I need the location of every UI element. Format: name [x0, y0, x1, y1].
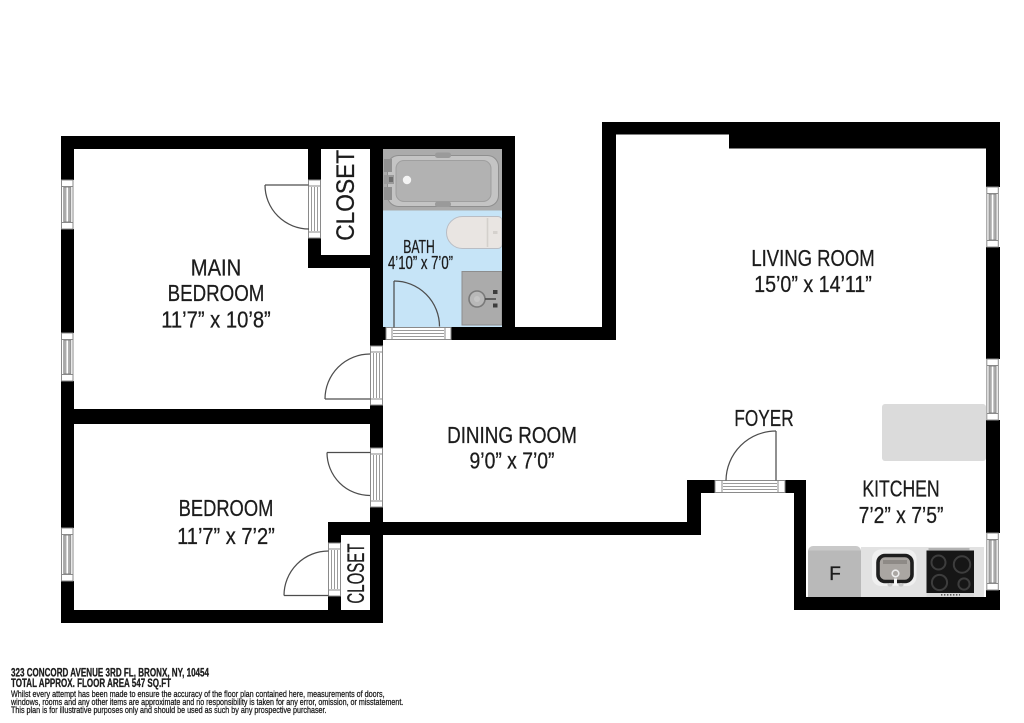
svg-text:7’2” x 7’5”: 7’2” x 7’5” — [859, 502, 944, 528]
svg-text:BEDROOM: BEDROOM — [179, 495, 274, 521]
svg-text:11’7” x 7’2”: 11’7” x 7’2” — [177, 523, 275, 549]
svg-text:FOYER: FOYER — [734, 405, 793, 431]
svg-text:MAIN: MAIN — [191, 254, 242, 280]
svg-text:15’0” x 14’11”: 15’0” x 14’11” — [754, 271, 872, 297]
svg-text:11’7” x 10’8”: 11’7” x 10’8” — [161, 307, 271, 333]
svg-text:BEDROOM: BEDROOM — [168, 280, 265, 306]
svg-text:CLOSET: CLOSET — [343, 543, 370, 603]
svg-text:4’10” x 7’0”: 4’10” x 7’0” — [388, 253, 453, 273]
svg-text:This plan is for illustrative: This plan is for illustrative purposes o… — [11, 705, 327, 715]
svg-text:9’0” x 7’0”: 9’0” x 7’0” — [470, 448, 555, 474]
svg-text:LIVING ROOM: LIVING ROOM — [751, 245, 874, 271]
svg-text:KITCHEN: KITCHEN — [862, 476, 939, 502]
svg-text:F: F — [829, 564, 841, 585]
svg-text:TOTAL APPROX. FLOOR AREA 547 S: TOTAL APPROX. FLOOR AREA 547 SQ.FT — [11, 678, 171, 690]
svg-text:CLOSET: CLOSET — [332, 150, 360, 241]
svg-text:DINING ROOM: DINING ROOM — [447, 422, 577, 448]
